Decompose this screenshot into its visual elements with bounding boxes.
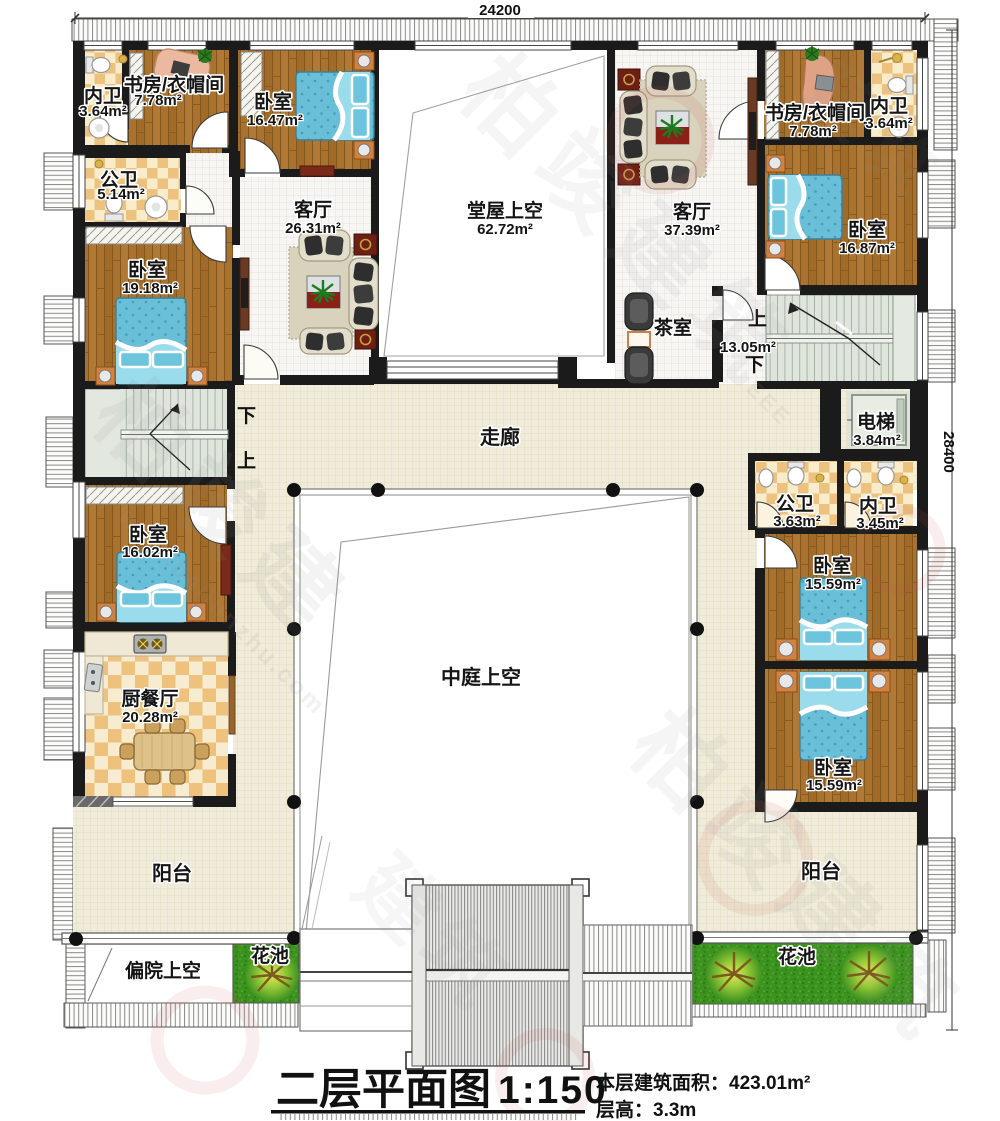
svg-text:62.72m²: 62.72m² [477, 221, 533, 238]
svg-text:中庭上空: 中庭上空 [441, 665, 521, 689]
svg-text:37.39m²: 37.39m² [664, 222, 720, 239]
svg-text:走廊: 走廊 [480, 425, 520, 449]
svg-text:3.63m²: 3.63m² [773, 513, 821, 530]
svg-text:24200: 24200 [479, 2, 521, 19]
svg-text:5.14m²: 5.14m² [97, 186, 145, 203]
svg-text:堂屋上空: 堂屋上空 [467, 199, 543, 222]
svg-text:15.59m²: 15.59m² [806, 777, 862, 794]
svg-text:15.59m²: 15.59m² [805, 576, 861, 593]
svg-text:花池: 花池 [251, 944, 289, 967]
svg-text:3.45m²: 3.45m² [856, 515, 904, 532]
svg-text:7.78m²: 7.78m² [789, 123, 837, 140]
svg-text:7.78m²: 7.78m² [134, 92, 182, 109]
svg-text:16.02m²: 16.02m² [122, 544, 178, 561]
svg-text:20.28m²: 20.28m² [122, 709, 178, 726]
svg-text:26.31m²: 26.31m² [285, 220, 341, 237]
svg-text:阳台: 阳台 [152, 861, 192, 885]
svg-text:电梯: 电梯 [857, 410, 895, 433]
svg-text:卧室: 卧室 [813, 554, 851, 577]
svg-text:28400: 28400 [940, 431, 957, 473]
svg-text:本层建筑面积：423.01m²: 本层建筑面积：423.01m² [596, 1071, 810, 1094]
svg-text:客厅: 客厅 [294, 198, 332, 221]
svg-text:卧室: 卧室 [128, 258, 166, 281]
svg-text:3.84m²: 3.84m² [853, 432, 901, 449]
svg-text:公卫: 公卫 [776, 493, 814, 515]
svg-text:卧室: 卧室 [129, 523, 167, 546]
svg-text:13.05m²: 13.05m² [720, 339, 776, 356]
svg-text:层高：3.3m: 层高：3.3m [596, 1098, 696, 1121]
svg-text:阳台: 阳台 [801, 859, 841, 883]
svg-text:偏院上空: 偏院上空 [125, 959, 201, 982]
svg-text:花池: 花池 [778, 945, 816, 968]
svg-text:茶室: 茶室 [654, 316, 692, 339]
svg-text:3.64m²: 3.64m² [865, 115, 913, 132]
svg-text:1:150: 1:150 [498, 1069, 608, 1112]
svg-text:厨餐厅: 厨餐厅 [121, 687, 178, 710]
svg-text:19.18m²: 19.18m² [122, 280, 178, 297]
svg-text:下: 下 [237, 406, 256, 427]
svg-text:二层平面图: 二层平面图 [276, 1066, 491, 1114]
svg-text:16.47m²: 16.47m² [247, 112, 303, 129]
svg-text:16.87m²: 16.87m² [839, 240, 895, 257]
svg-text:客厅: 客厅 [673, 200, 711, 223]
svg-text:书房/衣帽间: 书房/衣帽间 [765, 101, 865, 124]
svg-text:卧室: 卧室 [848, 218, 886, 241]
svg-text:卧室: 卧室 [254, 90, 292, 113]
svg-text:内卫: 内卫 [859, 494, 897, 517]
svg-text:内卫: 内卫 [870, 94, 908, 117]
svg-text:卧室: 卧室 [814, 756, 852, 779]
svg-text:3.64m²: 3.64m² [79, 103, 127, 120]
